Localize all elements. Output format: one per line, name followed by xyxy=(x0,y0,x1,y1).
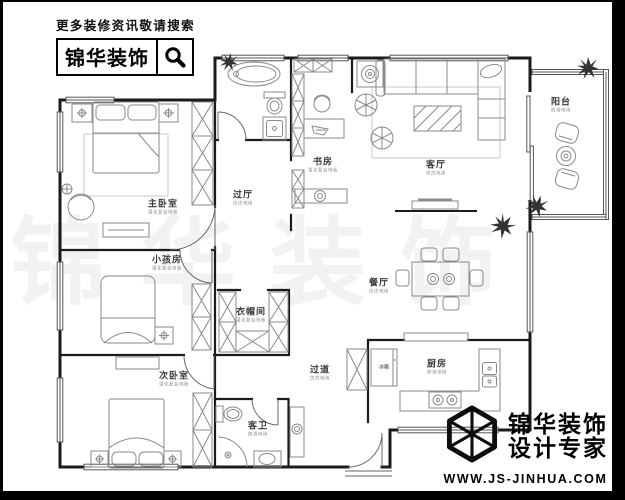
bottom-edge xyxy=(0,491,625,500)
footer-brand-line2: 设计专家 xyxy=(508,437,608,461)
footer: 锦华装饰 设计专家 WWW.JS-JINHUA.COM xyxy=(443,404,608,486)
right-edge xyxy=(612,0,625,500)
room-label-kids-room: 小孩房强化复合地板 xyxy=(152,253,182,272)
cube-logo-icon xyxy=(443,404,501,469)
room-label-balcony: 阳台防滑地砖 xyxy=(551,95,571,114)
room-label-master-bedroom: 主卧室强化复合地板 xyxy=(148,197,178,216)
room-label-hall: 过厅仿古地砖 xyxy=(233,188,253,207)
room-label-fridge: 冰箱 xyxy=(379,364,389,371)
brand-logo-box: 锦华装饰 xyxy=(56,38,194,76)
top-edge xyxy=(0,0,625,2)
room-label-guest-bathroom: 客卫防滑地砖 xyxy=(248,419,268,438)
room-label-study: 书房强化复合地板 xyxy=(308,155,338,174)
room-label-corridor: 过道仿古地砖 xyxy=(310,363,330,382)
search-icon xyxy=(156,40,192,74)
brand-name: 锦华装饰 xyxy=(58,40,156,74)
footer-brand: 锦华装饰 设计专家 xyxy=(508,413,608,461)
room-label-cloakroom: 衣帽间强化复合地板 xyxy=(236,305,266,324)
floorplan-page: 锦华装饰 xyxy=(0,0,625,500)
footer-website: WWW.JS-JINHUA.COM xyxy=(444,472,608,486)
left-edge xyxy=(0,0,3,500)
room-label-dining-room: 餐厅仿古地砖 xyxy=(369,276,389,295)
header: 更多装修资讯敬请搜索 锦华装饰 xyxy=(56,15,195,76)
search-slogan: 更多装修资讯敬请搜索 xyxy=(56,15,195,34)
room-label-kitchen: 厨房防滑地砖 xyxy=(427,357,447,376)
footer-brand-line1: 锦华装饰 xyxy=(508,413,608,437)
room-label-living-room: 客厅仿古地砖 xyxy=(426,158,446,177)
room-label-second-bedroom: 次卧室强化复合地板 xyxy=(159,369,189,388)
